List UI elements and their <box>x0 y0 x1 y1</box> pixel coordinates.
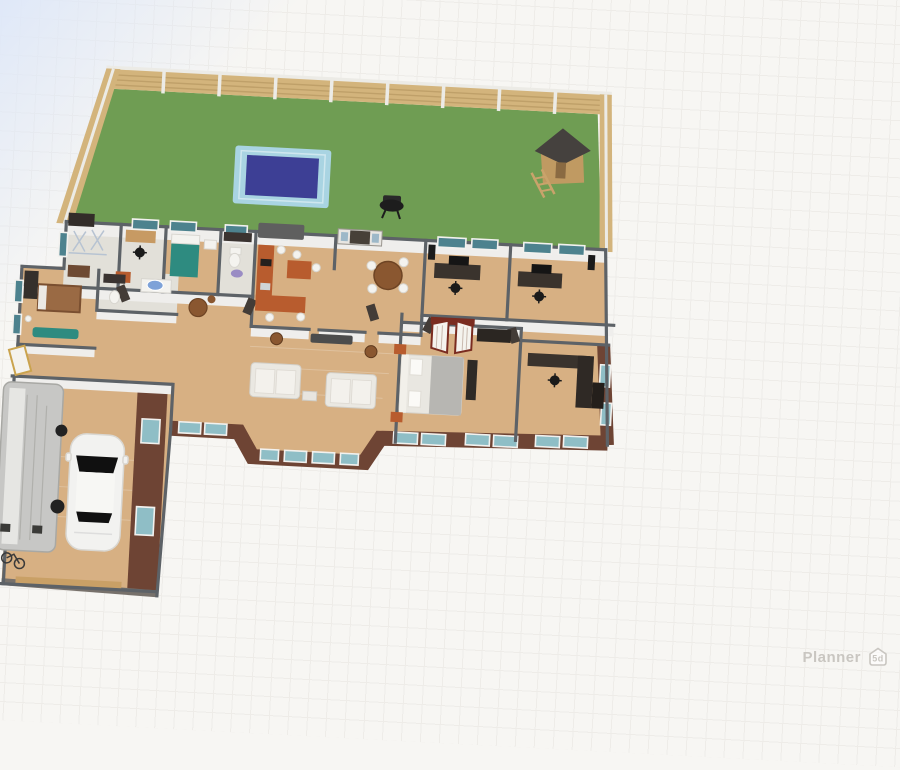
pouf <box>270 332 283 345</box>
planner5d-badge-icon: 5d <box>866 647 890 667</box>
rear-window <box>76 511 112 523</box>
toilet <box>109 290 120 304</box>
pouf <box>365 345 378 358</box>
desk <box>125 230 156 244</box>
planner5d-watermark: Planner 5d <box>802 647 890 667</box>
sink <box>147 280 164 291</box>
sofa-left[interactable] <box>249 362 301 399</box>
stool <box>312 263 320 271</box>
mirror <box>66 453 71 461</box>
stool <box>296 313 304 321</box>
chair <box>399 258 408 267</box>
windshield <box>75 455 118 473</box>
monitor <box>531 264 551 274</box>
toilet <box>229 253 241 268</box>
desk <box>518 271 563 288</box>
kitchen-sink <box>260 283 270 291</box>
speaker <box>588 255 596 270</box>
nightstand <box>390 412 403 423</box>
chair <box>399 284 408 293</box>
scene[interactable] <box>0 61 628 619</box>
fridge[interactable] <box>258 223 305 240</box>
chair <box>368 284 377 293</box>
floorplan-3d-viewport[interactable] <box>0 0 900 675</box>
dresser <box>477 328 512 343</box>
cooktop <box>260 259 271 267</box>
watermark-badge-text: 5d <box>872 654 884 664</box>
coffee-table <box>302 391 316 401</box>
speaker <box>428 245 436 260</box>
house[interactable] <box>0 210 620 619</box>
lamp <box>25 316 31 322</box>
kitchen-island <box>287 260 312 279</box>
white-car[interactable] <box>61 433 129 552</box>
dining-table <box>373 261 402 290</box>
sofa-right[interactable] <box>325 372 377 409</box>
headboard <box>23 270 38 299</box>
watermark-text: Planner <box>802 649 861 666</box>
monitor <box>449 256 469 266</box>
cabinet <box>591 382 604 409</box>
stool <box>293 250 301 258</box>
master-bed[interactable] <box>399 354 464 415</box>
desk <box>434 263 481 280</box>
front-door[interactable] <box>338 229 383 246</box>
swimming-pool[interactable] <box>233 145 332 208</box>
mirror <box>123 456 128 464</box>
bench <box>466 360 478 400</box>
stool <box>277 246 285 254</box>
stool <box>265 313 273 321</box>
chair <box>367 261 376 270</box>
nightstand <box>394 344 407 355</box>
